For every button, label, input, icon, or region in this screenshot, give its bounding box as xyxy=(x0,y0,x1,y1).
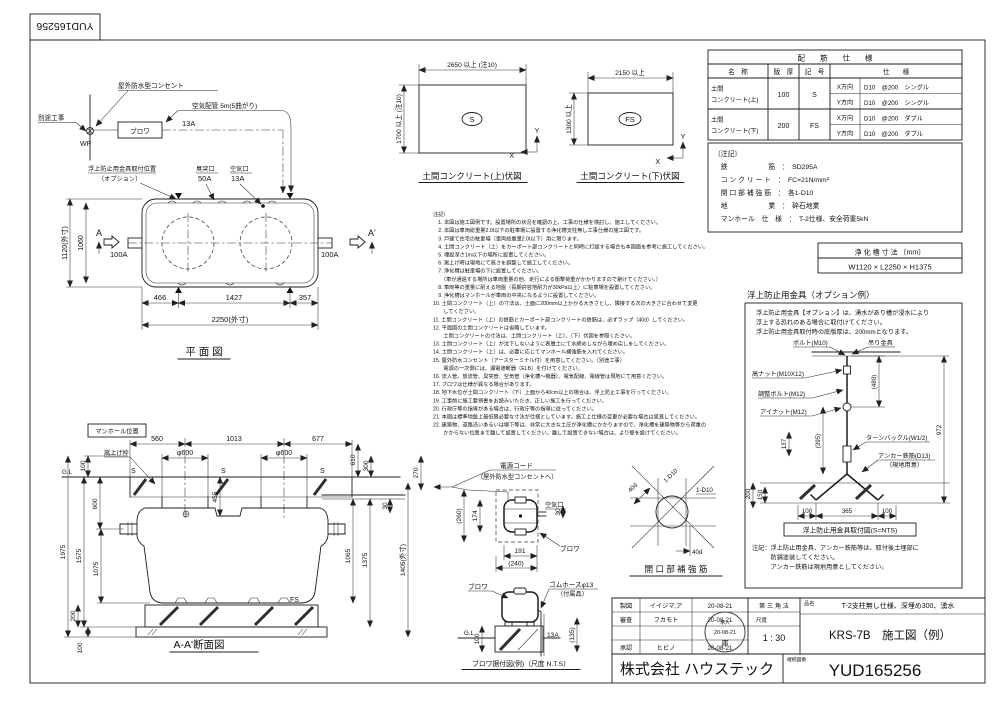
tb-row3-label: 承認 xyxy=(620,644,632,652)
lower-slab-height: 1300 以上 xyxy=(564,104,573,134)
lower-slab-width: 2150 以上 xyxy=(615,68,645,77)
spec-note-line: 開 口 部 補 強 筋 ： 各1-D10 xyxy=(714,188,814,197)
plan-dim-1060: 1060 xyxy=(78,235,85,251)
note-line: 21. 本図は標準地盤上最低限必要な寸法が仕様としています。施工上仕様の変更が必… xyxy=(433,413,700,421)
vent-label: 臭突口 xyxy=(196,165,215,173)
opening-bar2-label: 1-D10 xyxy=(696,487,713,494)
note-line: 5. 埋設深さ1m以下の場所に設置してください。 xyxy=(433,251,549,259)
spec-note-line: 地 業 ： 砕石地業 xyxy=(714,201,820,210)
rebar-row2-symbol: FS xyxy=(810,123,819,130)
note-line: 8. 車両等の重量に耐える地盤（長期許容地耐力が30kPa以上）に駐車場を設置し… xyxy=(433,283,655,291)
hose-label2: （付属品） xyxy=(557,590,588,598)
rebar-row1-xspec: D10 @200 シングル xyxy=(864,84,929,92)
tb-row1-name: イイジマ,ア xyxy=(650,603,683,610)
company-name: 株式会社 ハウステック xyxy=(620,661,774,678)
anti-float-bottom-note: アンカー鉄筋は現地用意としてください。 xyxy=(752,563,888,571)
dim-395: (395) xyxy=(815,434,822,448)
note-line: 7. 浄化槽は駐車場の下に設置してください。 xyxy=(433,267,542,275)
note-line: 17. ブロワは仕様が異なる場合があります。 xyxy=(433,380,535,388)
bp-dim-240: (240) xyxy=(508,561,523,568)
product-name-label: 品名 xyxy=(804,599,814,607)
tb-row3-name: ヒビノ xyxy=(657,644,676,652)
rebar-row1-thickness: 100 xyxy=(778,92,790,99)
rebar-col-name: 名 称 xyxy=(728,67,748,76)
spec-note-line: 〔注記〕 xyxy=(714,149,741,158)
opening-rebar-title: 開 口 部 補 強 筋 xyxy=(645,564,708,574)
spec-note-line: マンホール 仕 様 ： T-2仕様、安全荷重5kN xyxy=(714,214,869,223)
drawing-canvas: YUD165256 別途工事 WP ブロワ 13A 屋外防水型コンセント 空気配… xyxy=(0,0,1000,707)
slab-mark-s3: S xyxy=(320,468,325,475)
sec-dim-610: 610 xyxy=(350,454,357,465)
sec-dim-1575: 1575 xyxy=(76,548,83,563)
anchor-rebar-label: アンカー鉄筋(D13) xyxy=(878,452,930,460)
note-line: 2. 本図は車両総重量2.0t以下の駐車場に設置する浄化槽支柱無し工事仕様の施工… xyxy=(433,226,644,234)
note-line: 10. 土間コンクリート（上）の寸法は、土面に200mm以上かかる大きさとし、隣… xyxy=(433,299,698,307)
section-view: マンホール位置 嵩上げ枠 560 1013 677 φ600 φ600 G.L … xyxy=(60,424,421,654)
bp-dim-260: (260) xyxy=(456,508,463,523)
wp-label: WP xyxy=(80,141,92,148)
rebar-row1-symbol: S xyxy=(812,92,817,99)
sec-dim-100t: 100 xyxy=(80,460,87,471)
anti-float-bottom-note: 注記：浮上防止用金具、アンカー鉄筋等は、取付後土埋部に xyxy=(752,544,919,552)
sec-dim-1065: 1065 xyxy=(345,548,352,563)
gl-label-mount: G.L xyxy=(464,630,475,637)
continuation-label: 継続図番 xyxy=(787,656,806,663)
rebar-spec-table: 配 筋 仕 様 名 称 版 厚 記 号 仕 様 土間 コンクリート(上) 100… xyxy=(708,50,962,140)
note-line: してください。 xyxy=(433,308,479,315)
upper-slab-width: 2650 以上 (注10) xyxy=(447,60,497,69)
blower-mount-detail: ブロワ ゴムホースφ13 （付属品） G.L 13A 100 (135) ブロワ… xyxy=(458,580,598,670)
dim-137: 137 xyxy=(781,438,788,449)
sec-dim-1075: 1075 xyxy=(93,561,100,576)
upper-slab-height: 1700 以上 (注10) xyxy=(394,94,403,144)
outdoor-outlet-label: 屋外防水型コンセント xyxy=(118,81,184,90)
bp-dim-191: 191 xyxy=(514,548,525,555)
blower-mount-title: ブロワ据付図(例)（尺度 N.T.S） xyxy=(472,659,570,668)
outlet-size-label: 100A xyxy=(321,250,339,259)
blower-plan-label: ブロワ xyxy=(560,544,580,553)
spec-notes-box: 〔注記〕 鉄 筋 ： SD295A コ ン ク リ ー ト ： FC=21N/m… xyxy=(708,143,962,232)
sec-dim-1975: 1975 xyxy=(60,544,67,559)
adjust-bolt-label: 調整ボルト(M12) xyxy=(758,390,805,398)
plan-dim-466: 466 xyxy=(154,293,167,302)
bolt-label: ボルト(M10) xyxy=(793,339,828,347)
rebar-row2-thickness: 200 xyxy=(778,123,790,130)
high-nut-label: 高ナット(M10X12) xyxy=(752,370,804,378)
rebar-row1-ydir: Y方向 xyxy=(837,99,854,107)
sec-dim-phi600b: φ600 xyxy=(276,450,292,457)
note-line: 19. 工事前に施工要領書をお読みいただき、正しい施工を行ってください。 xyxy=(433,396,607,404)
section-mark-a-prime: A' xyxy=(368,228,376,238)
rebar-row2-yspec: D10 @200 ダブル xyxy=(864,130,923,138)
bp-dim-30: 30 xyxy=(555,508,562,516)
tank-size-title: 浄 化 槽 寸 法 〔mm〕 xyxy=(855,248,925,257)
blower-wiring-schematic: 別途工事 WP ブロワ 13A 屋外防水型コンセント 空気配管 5m(5曲がり)… xyxy=(38,81,291,208)
bm-dim-100: 100 xyxy=(474,633,481,644)
section-view-title: A-A'断面図 xyxy=(173,638,224,651)
rebar-col-symbol: 記 号 xyxy=(805,67,825,76)
dim-100a: 100 xyxy=(802,508,813,515)
note-line: 13. 土間コンクリート（上）が沈下しないように表層土にて水締めしながら埋め戻し… xyxy=(433,340,670,348)
dim-972: 972 xyxy=(936,424,943,435)
opening-dim-40d-a: 40d xyxy=(627,481,640,494)
tb-row1-label: 製図 xyxy=(620,602,632,610)
product-line1: T-2支柱無し仕様、深埋め300、湧水 xyxy=(842,601,955,610)
rebar-row2-name1: 土間 xyxy=(711,116,723,124)
rebar-row1-xdir: X方向 xyxy=(837,83,854,91)
opening-bar1-label: 1-D10 xyxy=(663,467,680,484)
dim-200b: 200 xyxy=(745,488,752,499)
plan-dim-1120: 1120(外寸) xyxy=(60,226,69,260)
rebar-row2-xdir: X方向 xyxy=(837,114,854,122)
upper-slab-mark: S xyxy=(469,115,474,124)
note-line: 11. 土間コンクリート（上）の鉄筋とカーポート部コンクリートの鉄筋は、必ずラッ… xyxy=(433,315,688,323)
upper-slab-x-axis: X xyxy=(509,153,514,160)
power-cord-label2: （屋外防水型コンセントへ） xyxy=(477,473,557,481)
note-line: 15. 屋外防水コンセント（アースターミナル付）を用意してください。（別途工事） xyxy=(433,356,625,364)
tank-size-box: 浄 化 槽 寸 法 〔mm〕 W1120 × L2250 × H1375 xyxy=(818,243,962,273)
note-line: 20. 行政庁等の指導がある場合は、行政庁等の指導に従ってください。 xyxy=(433,404,597,412)
plan-dim-2250: 2250(外寸) xyxy=(212,314,249,324)
sec-dim-455: 455 xyxy=(212,491,219,502)
sec-dim-1375: 1375 xyxy=(362,552,369,567)
rebar-row1-name1: 土間 xyxy=(711,85,723,93)
lower-slab-title: 土間コンクリート(下)伏図 xyxy=(580,171,679,181)
dim-100b: 100 xyxy=(882,508,893,515)
note-line: 18. 地下水位が土間コンクリート（下）上面から40cm以上の場合は、浮上防止工… xyxy=(433,388,672,396)
rebar-col-spec: 仕 様 xyxy=(883,67,910,76)
power-cord-label: 電源コード xyxy=(500,461,533,470)
hose-label: ゴムホースφ13 xyxy=(549,580,594,589)
note-line: 1. 本図は施工図例です。設置場所の状況を確認の上、工事の仕様を検討し、施工して… xyxy=(433,218,661,226)
plan-dim-357: 357 xyxy=(299,293,312,302)
anti-float-pos-label2: （オプション） xyxy=(98,176,141,183)
air-pipe-label: 空気配管 5m(5曲がり) xyxy=(192,101,257,110)
sec-dim-1405: 1405(外寸) xyxy=(398,544,407,576)
sec-dim-200: 200 xyxy=(70,610,77,621)
air-port-size-label: 13A xyxy=(231,174,244,183)
anti-float-note-line: 浮上防止用金具取付時の底版厚は、200mmとなります。 xyxy=(756,328,912,336)
note-line: 3. 戸建て住宅の駐車場（車両総重量2.0t以下）用に限ります。 xyxy=(433,234,582,242)
plan-view: A A' 100A 100A 1120(外寸) 1060 466 1427 35… xyxy=(60,193,376,359)
turnbuckle-label: ターンバックル(W1/2) xyxy=(866,434,927,442)
scale-label: 尺度 xyxy=(756,616,768,624)
drawing-number: YUD165256 xyxy=(829,661,922,680)
anti-float-note-line: 浮上防止用金具【オプション】は、湧水があり槽が浸水により xyxy=(756,309,929,317)
plan-dim-1427: 1427 xyxy=(226,293,243,302)
note-line: 12. 平面図の土間コンクリートは省略しています。 xyxy=(433,323,550,331)
manhole-position-label: マンホール位置 xyxy=(95,428,138,436)
tb-row2-label: 審査 xyxy=(620,616,632,624)
note-line: 22. 建築物、道路沿いあるいは塀下等は、非常に大きな土圧が浄化槽にかかりますの… xyxy=(433,421,706,429)
rebar-table-title: 配 筋 仕 様 xyxy=(798,53,873,63)
note-line: 4. 土間コンクリート（上）をカーポート部コンクリートと同時に打設する場合も本図… xyxy=(433,242,708,250)
projection-label: 第 三 角 法 xyxy=(759,602,789,610)
note-line: 土間コンクリートの寸法は、土間コンクリート（上）、（下）伏図を参照ください。 xyxy=(433,332,635,340)
dim-150: 150 xyxy=(757,489,764,500)
slab-mark-s1: S xyxy=(131,468,136,475)
hanger-label: 吊り金具 xyxy=(868,339,893,347)
sec-dim-560: 560 xyxy=(151,436,163,443)
air-port-detail-label: 空気口 xyxy=(545,501,564,509)
lower-slab-mark: FS xyxy=(625,115,635,124)
spec-note-line: コ ン ク リ ー ト ： FC=21N/mm² xyxy=(714,176,830,184)
sec-dim-677: 677 xyxy=(312,436,324,443)
stamp-line2: 20-08-21 xyxy=(714,630,736,636)
rebar-row1-name2: コンクリート(上) xyxy=(711,96,758,104)
anti-float-title: 浮上防止用金具（オプション例） xyxy=(747,290,875,300)
blower-plan-detail: 電源コード （屋外防水型コンセントへ） 空気口 (260) 174 30 191… xyxy=(434,461,580,572)
dim-365: 365 xyxy=(842,508,853,515)
pipe-size-label: 13A xyxy=(547,632,559,639)
sec-dim-1013: 1013 xyxy=(226,436,242,443)
sec-dim-phi600a: φ600 xyxy=(177,450,193,457)
sec-dim-30: 30 xyxy=(382,502,389,510)
amp-label: 13A xyxy=(182,119,195,128)
upper-slab-plan: 2650 以上 (注10) 1700 以上 (注10) S Y X 土間コンクリ… xyxy=(394,60,540,183)
plan-view-title: 平 面 図 xyxy=(185,346,222,358)
tb-row1-date: 20-08-21 xyxy=(708,603,733,610)
blower-mount-label: ブロワ xyxy=(468,582,488,591)
sec-dim-300: 300 xyxy=(363,460,370,471)
blower-box-label: ブロワ xyxy=(130,127,150,136)
upper-slab-title: 土間コンクリート(上)伏図 xyxy=(422,171,521,181)
note-line: （車が通過する場所は車両重量の他、走行による衝撃荷重がかかりますので避けてくださ… xyxy=(433,275,661,283)
rebar-col-thickness: 版 厚 xyxy=(774,67,794,76)
tank-size-value: W1120 × L2250 × H1375 xyxy=(848,263,931,272)
opening-dim-40d-b: 40d xyxy=(692,549,703,556)
drawing-sheet: YUD165256 別途工事 WP ブロワ 13A 屋外防水型コンセント 空気配… xyxy=(0,0,1000,707)
inlet-size-label: 100A xyxy=(110,250,128,259)
rebar-row2-xspec: D10 @200 ダブル xyxy=(864,115,923,123)
anti-float-section: 浮上防止用金具（オプション例） 浮上防止用金具【オプション】は、湧水があり槽が浸… xyxy=(745,290,962,588)
anchor-rebar-label2: （現地用意） xyxy=(886,461,923,469)
bp-dim-174: 174 xyxy=(472,510,479,521)
sec-dim-100b: 100 xyxy=(77,642,84,653)
anti-float-pos-label: 浮上防止用金具取付位置 xyxy=(88,165,156,173)
anti-float-caption: 浮上防止用金具取付図(S=NTS) xyxy=(803,526,898,535)
anti-float-note-line: 浮上する恐れのある場合に取付けてください。 xyxy=(756,319,886,327)
notes-list: 注記） 1. 本図は施工図例です。設置場所の状況を確認の上、工事の仕様を検討し、… xyxy=(433,210,708,437)
opening-rebar-detail: 40d 1-D10 1-D10 40d 開 口 部 補 強 筋 xyxy=(627,466,722,576)
tb-row2-name: フカモト xyxy=(654,617,679,624)
lower-slab-y-axis: Y xyxy=(681,134,686,141)
vent-size-label: 50A xyxy=(198,174,211,183)
sec-dim-270: 270 xyxy=(413,467,420,478)
doc-number-topleft: YUD165256 xyxy=(36,20,93,32)
note-line: 9. 浄化槽はマンホールが車両の中央になるように設置してください。 xyxy=(433,291,599,299)
gl-label-section: G.L xyxy=(62,469,73,476)
note-line: 16. 流入管、放流管、臭突管、空気管（浄化槽～機器）、電気配線、電線管は現地に… xyxy=(433,372,667,380)
stamp-line1: 承入 xyxy=(720,619,730,626)
note-line: 6. 嵩上げ時は現地にて高さを調整して施工してください。 xyxy=(433,259,573,267)
separate-work-label: 別途工事 xyxy=(38,113,65,122)
upper-slab-y-axis: Y xyxy=(535,128,540,135)
slab-mark-s2: S xyxy=(221,468,226,475)
rebar-row2-name2: コンクリート(下) xyxy=(711,128,758,135)
product-line2: KRS-7B 施工図（例） xyxy=(829,628,951,642)
note-line: 注記） xyxy=(433,210,449,218)
dim-480: (480) xyxy=(871,375,878,389)
eye-nut-label: アイナット(M12) xyxy=(760,409,807,416)
spec-note-line: 鉄 筋 ： SD295A xyxy=(714,162,818,171)
lower-slab-x-axis: X xyxy=(655,159,660,166)
note-line: 電源の一次側には、漏電遮断器（ELB）を付けてください。 xyxy=(433,364,583,372)
sec-dim-600: 600 xyxy=(92,498,99,509)
note-line: 14. 土間コンクリート（上）は、必要に応じてマンホール補強筋を入れてください。 xyxy=(433,348,628,356)
rebar-row2-ydir: Y方向 xyxy=(837,130,854,138)
air-port-label: 空気口 xyxy=(230,165,249,173)
note-line: かからない位置まで離して設置してください。離して設置できない場合は、より壁を設け… xyxy=(433,429,681,437)
scale-value: 1 : 30 xyxy=(763,633,786,643)
lower-slab-plan: 2150 以上 1300 以上 FS Y X 土間コンクリート(下)伏図 xyxy=(564,68,686,183)
section-mark-a: A xyxy=(96,228,102,238)
anti-float-bottom-note: 防錆塗装してください。 xyxy=(752,554,838,562)
bm-dim-135: (135) xyxy=(569,627,576,642)
fs-mark: FS xyxy=(290,597,299,604)
stamp-line3: 庫 xyxy=(722,639,729,648)
title-block: 製図 イイジマ,ア 20-08-21 審査 フカモト 20-08-21 承認 ヒ… xyxy=(612,598,985,682)
rebar-row1-yspec: D10 @200 シングル xyxy=(864,99,929,107)
